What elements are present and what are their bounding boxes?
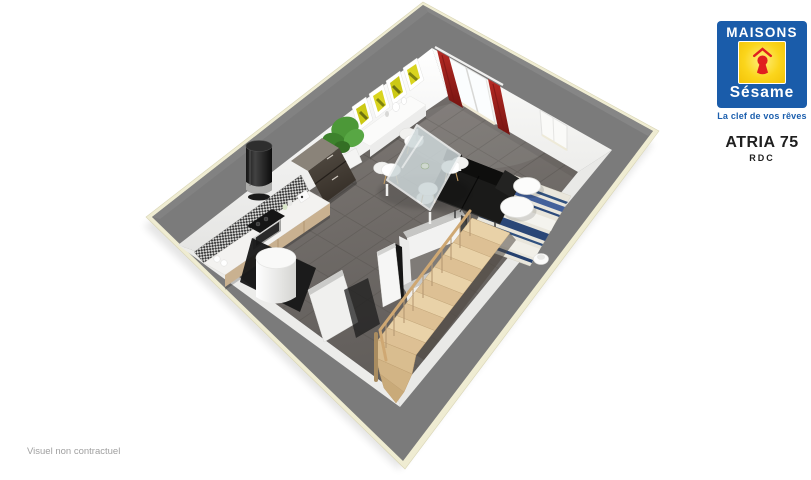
column-stove-hood <box>246 141 272 201</box>
floor-level-label: RDC <box>712 153 811 163</box>
screenshot-root: MAISONS Sésame La clef de vos rêves ATRI… <box>0 0 811 480</box>
vase <box>393 103 400 112</box>
brand-logo: MAISONS Sésame <box>718 22 806 107</box>
model-name: ATRIA 75 <box>712 134 811 152</box>
brand-lockup: MAISONS Sésame La clef de vos rêves ATRI… <box>712 22 811 163</box>
coffee-table <box>514 178 541 195</box>
floorplan-render <box>0 0 811 480</box>
centerpiece <box>421 163 429 169</box>
roof-icon <box>754 49 771 56</box>
coffee-table <box>501 197 534 218</box>
glass-ornament <box>385 111 389 117</box>
keyhole-icon <box>738 41 786 84</box>
brand-name-top: MAISONS <box>726 25 797 40</box>
brand-name-script: Sésame <box>730 84 795 102</box>
vase <box>402 98 407 105</box>
brand-tagline: La clef de vos rêves <box>712 111 811 121</box>
disclaimer-text: Visuel non contractuel <box>27 446 120 457</box>
